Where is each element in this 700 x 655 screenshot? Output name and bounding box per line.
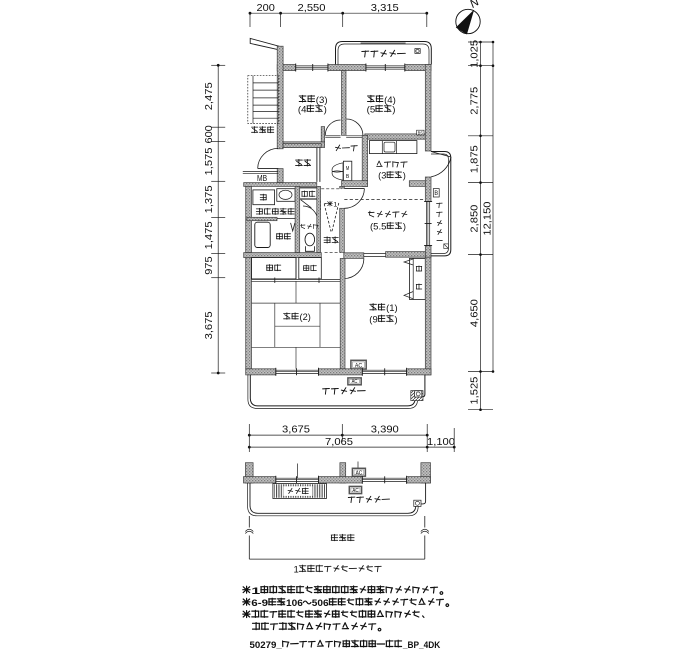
svg-text:3,675: 3,675 bbox=[204, 311, 215, 339]
svg-text:600: 600 bbox=[204, 125, 215, 144]
svg-text:BS: BS bbox=[418, 130, 423, 135]
svg-text:1,475: 1,475 bbox=[204, 221, 215, 249]
svg-text:1: 1 bbox=[294, 565, 299, 575]
svg-text:12,150: 12,150 bbox=[483, 201, 494, 235]
svg-text:): ) bbox=[403, 222, 406, 232]
svg-text:): ) bbox=[324, 105, 327, 115]
svg-text:3,315: 3,315 bbox=[371, 3, 399, 14]
svg-text:AC: AC bbox=[355, 362, 363, 369]
svg-text:7,065: 7,065 bbox=[325, 437, 353, 448]
svg-text:): ) bbox=[392, 105, 395, 115]
svg-text:2,475: 2,475 bbox=[204, 82, 215, 110]
svg-text:AC: AC bbox=[352, 379, 358, 385]
svg-text:506: 506 bbox=[312, 598, 329, 609]
svg-text:1: 1 bbox=[251, 586, 261, 597]
svg-text:B: B bbox=[434, 190, 438, 197]
svg-text:): ) bbox=[395, 315, 398, 325]
svg-text:1,025: 1,025 bbox=[470, 40, 481, 68]
svg-text:(5: (5 bbox=[367, 105, 376, 115]
svg-text:(2): (2) bbox=[300, 312, 311, 322]
svg-text:3,675: 3,675 bbox=[282, 425, 310, 436]
svg-text:2,775: 2,775 bbox=[470, 87, 481, 115]
svg-text:1,525: 1,525 bbox=[470, 376, 481, 404]
svg-text:(9: (9 bbox=[369, 315, 377, 325]
svg-text:B: B bbox=[346, 174, 350, 180]
svg-text:M: M bbox=[346, 166, 350, 172]
svg-text:4,650: 4,650 bbox=[470, 299, 481, 327]
svg-text:6-9: 6-9 bbox=[251, 598, 268, 609]
svg-text:200: 200 bbox=[257, 3, 276, 14]
svg-text:3,390: 3,390 bbox=[371, 425, 399, 436]
svg-text:1,100: 1,100 bbox=[427, 437, 455, 448]
svg-text:1,375: 1,375 bbox=[204, 185, 215, 213]
svg-text:(3): (3) bbox=[316, 95, 328, 105]
svg-text:(3: (3 bbox=[378, 171, 386, 181]
svg-text:1,875: 1,875 bbox=[470, 145, 481, 173]
svg-text:(4: (4 bbox=[298, 105, 307, 115]
svg-text:2,850: 2,850 bbox=[470, 204, 481, 232]
svg-text:AC: AC bbox=[356, 471, 363, 477]
svg-text:1,575: 1,575 bbox=[204, 147, 215, 175]
svg-text:2,550: 2,550 bbox=[298, 3, 326, 14]
svg-text:975: 975 bbox=[204, 256, 215, 275]
svg-text:(4): (4) bbox=[384, 95, 396, 105]
svg-text:): ) bbox=[403, 171, 406, 181]
svg-text:1: 1 bbox=[333, 202, 337, 209]
svg-text:(5.5: (5.5 bbox=[370, 222, 387, 232]
svg-text:(1): (1) bbox=[386, 303, 398, 313]
svg-text:AC: AC bbox=[352, 488, 358, 494]
svg-text:106: 106 bbox=[286, 598, 303, 609]
svg-text:MB: MB bbox=[257, 173, 267, 183]
svg-text:50279_: 50279_ bbox=[250, 640, 283, 650]
svg-text:_BP_4DK: _BP_4DK bbox=[402, 640, 441, 650]
